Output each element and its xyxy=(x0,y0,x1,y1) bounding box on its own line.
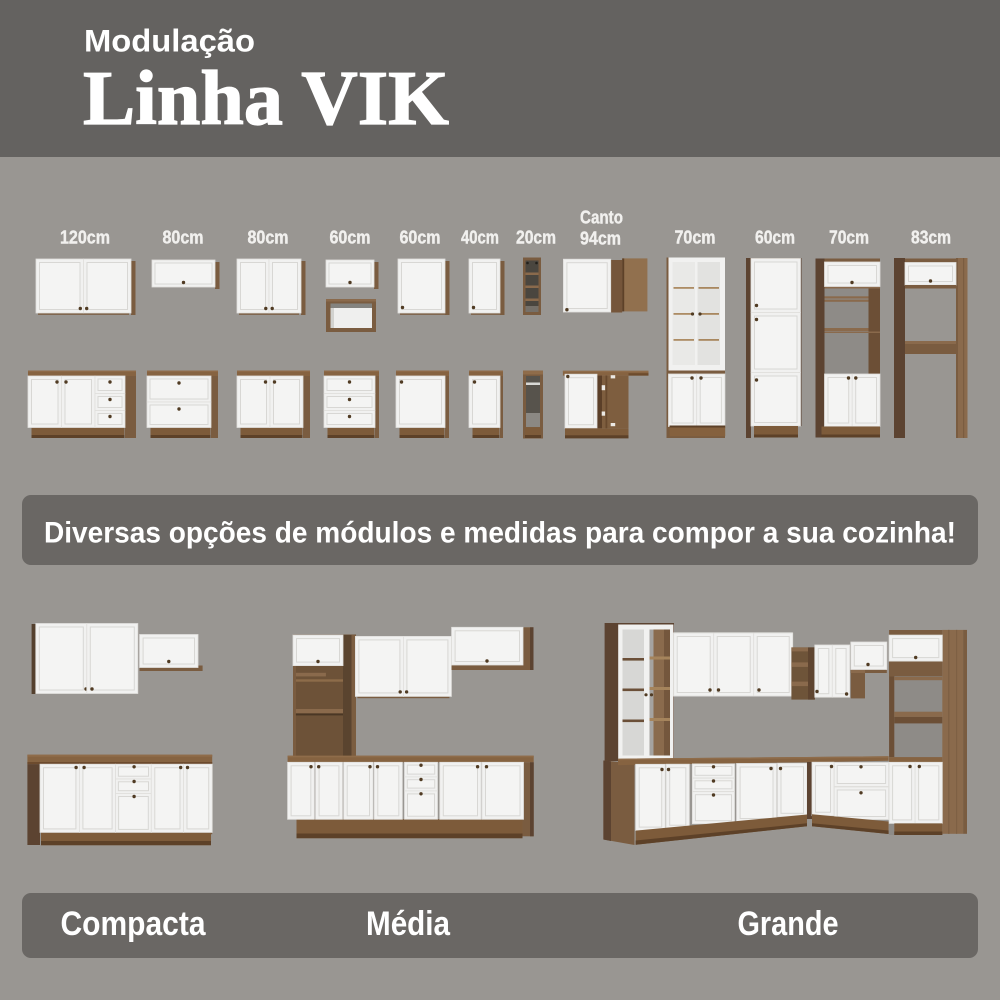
svg-text:80cm: 80cm xyxy=(163,228,204,248)
svg-text:Linha VIK: Linha VIK xyxy=(83,55,449,141)
svg-text:Compacta: Compacta xyxy=(61,905,207,943)
svg-text:Média: Média xyxy=(366,905,451,943)
svg-text:70cm: 70cm xyxy=(675,228,716,248)
svg-text:83cm: 83cm xyxy=(911,228,951,248)
svg-text:94cm: 94cm xyxy=(580,229,621,249)
svg-text:Modulação: Modulação xyxy=(84,23,255,59)
svg-text:80cm: 80cm xyxy=(248,228,289,248)
svg-text:Canto: Canto xyxy=(580,208,623,228)
svg-text:60cm: 60cm xyxy=(755,228,795,248)
svg-text:70cm: 70cm xyxy=(829,228,869,248)
svg-text:120cm: 120cm xyxy=(60,228,110,248)
svg-text:60cm: 60cm xyxy=(330,228,371,248)
svg-text:60cm: 60cm xyxy=(400,228,441,248)
svg-text:Diversas opções de módulos e m: Diversas opções de módulos e medidas par… xyxy=(44,517,956,550)
svg-text:Grande: Grande xyxy=(738,905,839,943)
svg-text:40cm: 40cm xyxy=(461,228,499,248)
svg-text:20cm: 20cm xyxy=(516,228,556,248)
